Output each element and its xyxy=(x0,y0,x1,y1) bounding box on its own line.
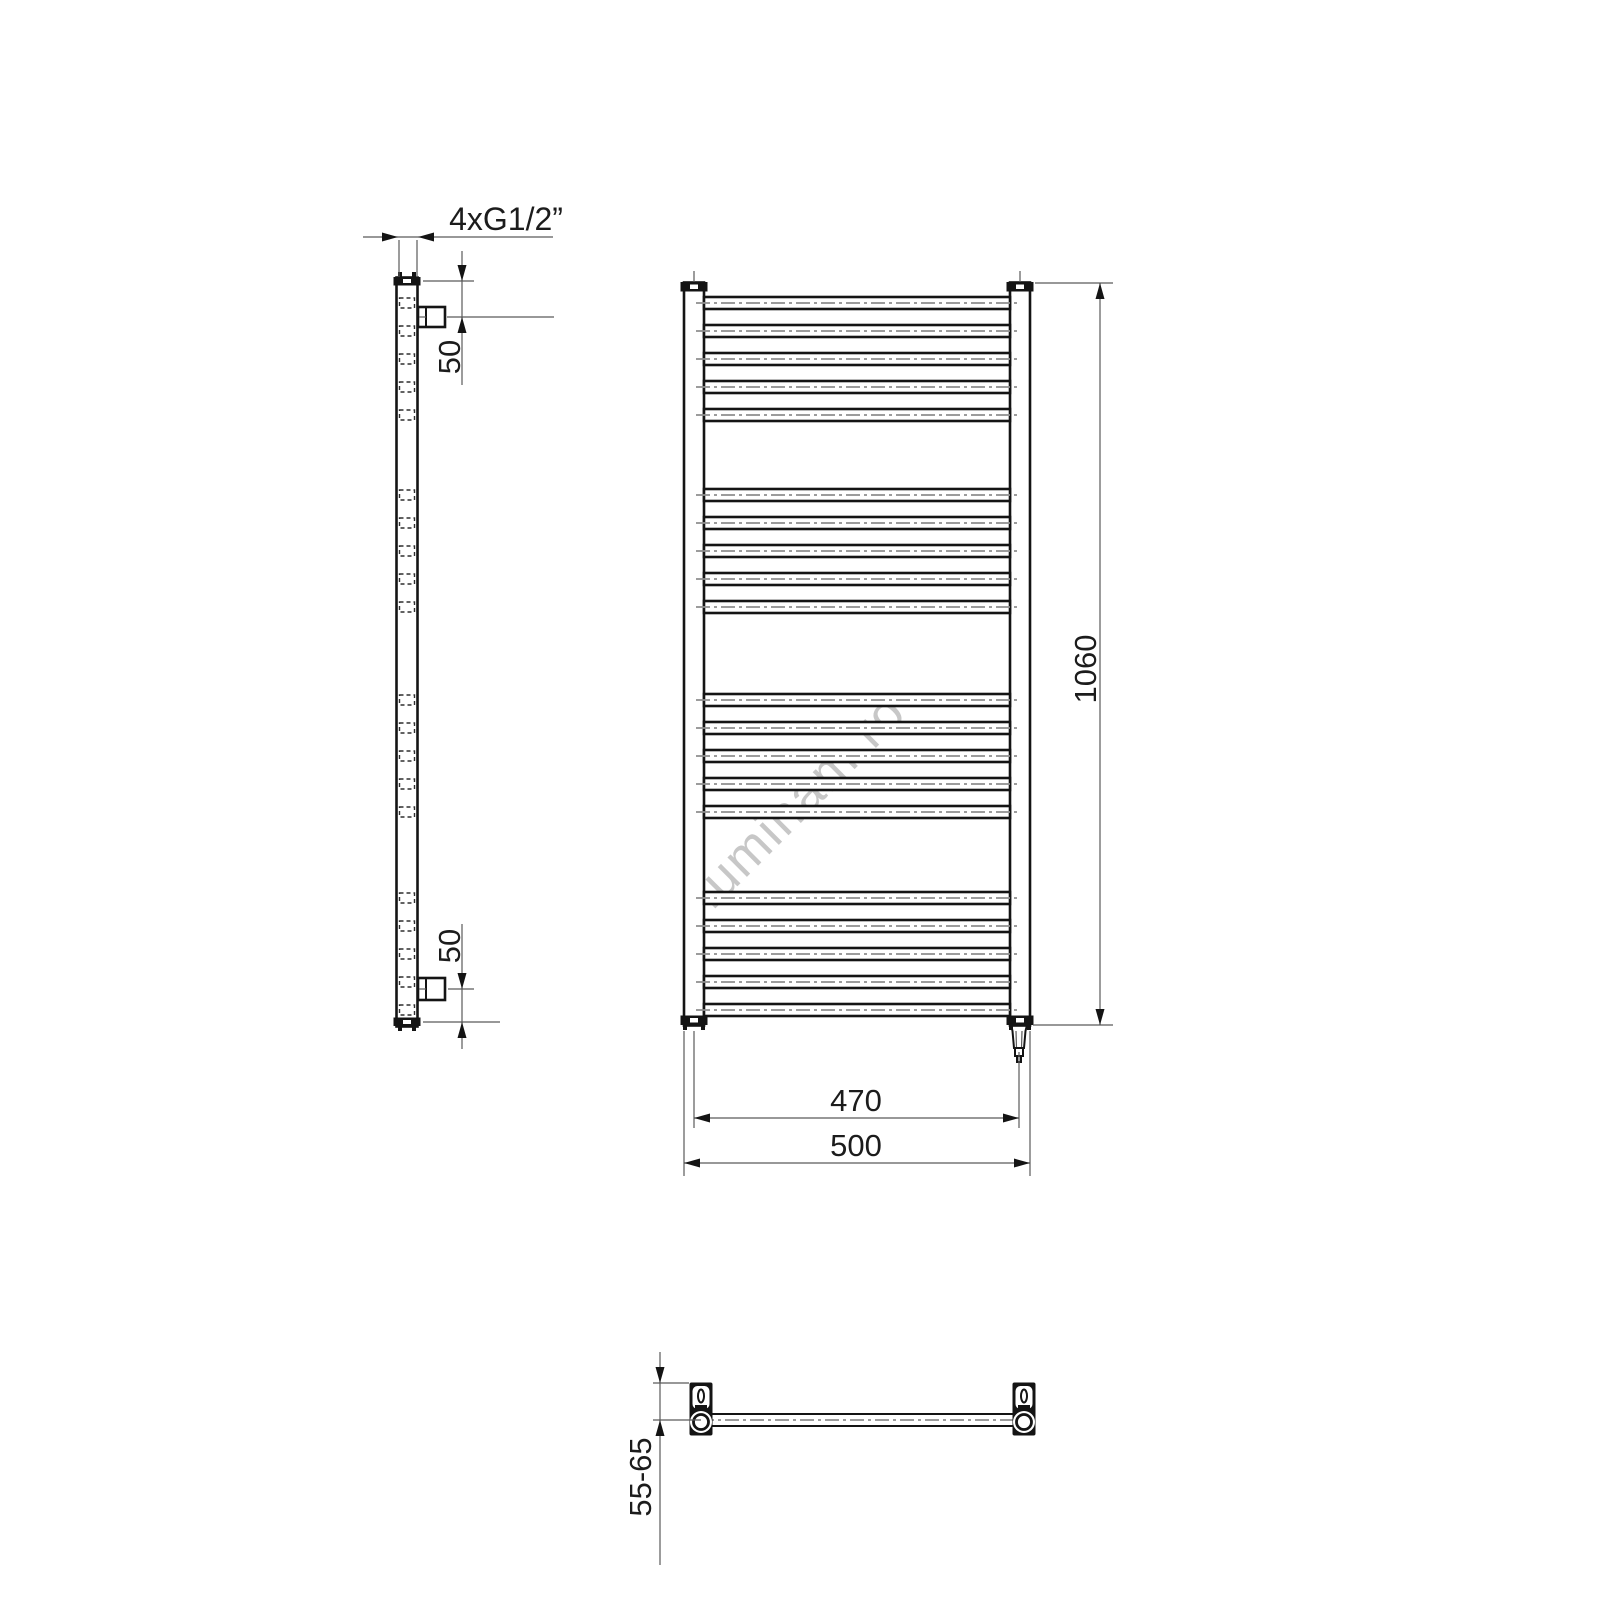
side-top-cap-slot xyxy=(403,279,411,283)
side-bottom-cap-tab xyxy=(412,1026,416,1031)
side-bottom-cap-slot xyxy=(403,1020,411,1024)
right-collector-tube xyxy=(1010,283,1030,1026)
left-wall-bracket xyxy=(690,1383,713,1436)
height-label: 1060 xyxy=(1068,635,1103,704)
right-bracket-tube-clamp xyxy=(1017,1415,1032,1430)
watermark-text: luminam.ro xyxy=(680,682,917,919)
arrowhead xyxy=(1096,283,1105,299)
arrowhead xyxy=(656,1367,665,1383)
top-offset-label: 50 xyxy=(432,340,467,374)
left-top-cap-slot xyxy=(690,285,698,290)
arrowhead xyxy=(458,973,467,989)
arrowhead xyxy=(1003,1114,1019,1123)
left-bracket-tube-clamp xyxy=(694,1415,709,1430)
arrowhead xyxy=(458,1022,467,1038)
electric-element-rib xyxy=(1022,1031,1023,1048)
center-width-label: 470 xyxy=(830,1083,882,1118)
front-rungs xyxy=(704,297,1010,1016)
dim-wall-distance: 55-65 xyxy=(623,1352,701,1565)
arrowhead xyxy=(656,1420,665,1436)
right-top-cap-slot xyxy=(1016,285,1024,290)
left-collector-tube xyxy=(684,283,704,1026)
left-bottom-cap-tab xyxy=(701,1025,705,1030)
right-bracket-clamp-bar xyxy=(1018,1405,1030,1409)
side-bottom-cap-tab xyxy=(398,1026,402,1031)
left-bracket-clamp-bar xyxy=(695,1405,707,1409)
right-bracket-screw-slot xyxy=(1021,1390,1027,1403)
watermark-layer: luminam.ro xyxy=(680,682,917,919)
technical-drawing: luminam.ro xyxy=(0,0,1600,1600)
right-wall-bracket xyxy=(1013,1383,1036,1436)
arrowhead xyxy=(1014,1159,1030,1168)
overall-width-label: 500 xyxy=(830,1128,882,1163)
bottom-offset-label: 50 xyxy=(432,929,467,963)
dim-height: 1060 xyxy=(1033,283,1113,1025)
arrowhead xyxy=(1096,1009,1105,1025)
arrowhead xyxy=(382,233,398,242)
connections-label: 4xG1/2” xyxy=(449,201,563,237)
left-bracket-screw-slot xyxy=(698,1390,704,1403)
wall-distance-label: 55-65 xyxy=(623,1437,658,1516)
arrowhead xyxy=(458,317,467,333)
left-bottom-cap-slot xyxy=(690,1018,698,1023)
dim-center-width: 470 xyxy=(694,1031,1019,1128)
side-top-cap-tab xyxy=(412,272,416,277)
arrowhead xyxy=(694,1114,710,1123)
arrowhead xyxy=(458,265,467,281)
drawing-canvas: luminam.ro xyxy=(0,0,1600,1600)
arrowhead xyxy=(684,1159,700,1168)
front-view xyxy=(681,271,1034,1062)
side-bar xyxy=(397,278,446,1027)
arrowhead xyxy=(418,233,434,242)
right-bottom-cap-slot xyxy=(1016,1018,1024,1023)
electric-element-body xyxy=(1011,1025,1027,1048)
side-view xyxy=(394,272,446,1031)
left-bottom-cap-tab xyxy=(683,1025,687,1030)
electric-element-rib xyxy=(1016,1031,1017,1048)
bracket-view xyxy=(690,1383,1036,1436)
